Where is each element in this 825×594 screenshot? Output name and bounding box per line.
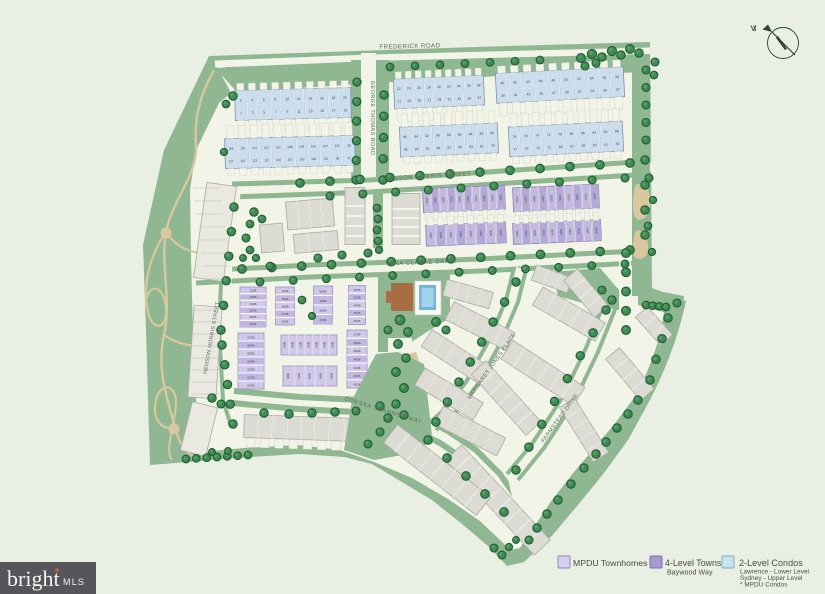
svg-text:MLS: MLS	[63, 577, 85, 587]
svg-text:0606: 0606	[248, 343, 255, 347]
svg-text:1900: 1900	[466, 195, 470, 202]
svg-text:4506: 4506	[319, 373, 323, 379]
svg-text:49: 49	[565, 90, 569, 94]
svg-text:40: 40	[500, 81, 504, 85]
svg-text:53: 53	[590, 89, 594, 93]
svg-text:1300: 1300	[433, 197, 437, 204]
svg-text:3606: 3606	[354, 319, 361, 323]
svg-text:* MPDU Condos: * MPDU Condos	[740, 582, 788, 589]
svg-text:1506: 1506	[282, 297, 289, 301]
svg-text:0400: 0400	[541, 195, 545, 202]
svg-text:25: 25	[417, 98, 421, 102]
svg-text:91: 91	[426, 147, 430, 151]
svg-text:80: 80	[490, 131, 494, 135]
svg-text:3806: 3806	[354, 341, 361, 345]
svg-text:0300: 0300	[532, 195, 536, 202]
svg-text:42: 42	[513, 80, 517, 84]
svg-text:8: 8	[274, 98, 276, 102]
svg-text:66: 66	[581, 131, 585, 135]
svg-text:3906: 3906	[354, 349, 361, 353]
svg-text:5806: 5806	[320, 290, 327, 294]
svg-text:2506: 2506	[331, 342, 335, 348]
svg-text:59: 59	[616, 142, 620, 146]
svg-text:6: 6	[263, 98, 265, 102]
svg-text:78: 78	[513, 135, 517, 139]
svg-text:71: 71	[547, 145, 551, 149]
svg-text:50: 50	[564, 78, 568, 82]
svg-text:98: 98	[347, 143, 351, 147]
svg-text:0706: 0706	[248, 335, 255, 339]
svg-text:Baywood Way: Baywood Way	[667, 570, 713, 577]
svg-text:0200: 0200	[523, 196, 527, 203]
svg-text:4400: 4400	[568, 228, 572, 235]
svg-text:4100: 4100	[541, 229, 545, 236]
svg-text:0906: 0906	[250, 315, 257, 319]
svg-text:0406: 0406	[248, 359, 255, 363]
svg-text:2206: 2206	[307, 342, 311, 348]
svg-text:104: 104	[311, 144, 316, 148]
svg-text:0306: 0306	[248, 367, 255, 371]
svg-text:2-Level Condos: 2-Level Condos	[739, 558, 803, 568]
svg-text:bright: bright	[7, 566, 60, 591]
svg-text:58: 58	[615, 75, 619, 79]
svg-text:18: 18	[332, 96, 336, 100]
svg-text:118: 118	[228, 146, 233, 150]
svg-text:2300: 2300	[490, 194, 494, 201]
svg-text:86: 86	[458, 133, 462, 137]
svg-text:2106: 2106	[299, 342, 303, 348]
svg-text:2006: 2006	[291, 342, 295, 348]
svg-text:1500: 1500	[441, 196, 445, 203]
svg-text:117: 117	[229, 159, 234, 163]
svg-text:2306: 2306	[315, 342, 319, 348]
svg-text:4-Level Towns: 4-Level Towns	[665, 558, 722, 568]
svg-text:1806: 1806	[282, 320, 289, 324]
svg-text:113: 113	[252, 158, 257, 162]
svg-text:1406: 1406	[282, 289, 289, 293]
svg-text:3900: 3900	[524, 230, 528, 237]
svg-text:114: 114	[252, 146, 257, 150]
svg-text:103: 103	[311, 157, 316, 161]
svg-text:51: 51	[578, 90, 582, 94]
svg-text:34: 34	[457, 84, 461, 88]
svg-text:23: 23	[407, 99, 411, 103]
svg-text:70: 70	[558, 132, 562, 136]
svg-text:41: 41	[514, 93, 518, 97]
svg-text:2200: 2200	[482, 195, 486, 202]
svg-text:39: 39	[501, 94, 505, 98]
svg-text:29: 29	[437, 98, 441, 102]
svg-text:1306: 1306	[250, 289, 257, 293]
svg-text:30: 30	[437, 85, 441, 89]
svg-text:1000: 1000	[592, 193, 596, 200]
svg-text:2600: 2600	[429, 232, 433, 239]
svg-text:4406: 4406	[329, 373, 333, 379]
svg-text:60: 60	[615, 129, 619, 133]
svg-text:1606: 1606	[282, 304, 289, 308]
svg-text:1: 1	[240, 111, 242, 115]
svg-text:2100: 2100	[474, 195, 478, 202]
svg-text:48: 48	[551, 78, 555, 82]
svg-text:44: 44	[526, 80, 530, 84]
svg-text:3206: 3206	[354, 288, 361, 292]
svg-text:2706: 2706	[320, 318, 327, 322]
svg-text:0600: 0600	[558, 194, 562, 201]
svg-text:82: 82	[479, 132, 483, 136]
svg-text:56: 56	[602, 76, 606, 80]
svg-text:14: 14	[308, 97, 312, 101]
svg-text:4: 4	[251, 98, 253, 102]
svg-text:73: 73	[536, 146, 540, 150]
svg-text:0900: 0900	[584, 193, 588, 200]
svg-text:3706: 3706	[354, 333, 361, 337]
svg-text:MPDU Townhomes: MPDU Townhomes	[573, 558, 648, 568]
svg-text:76: 76	[524, 134, 528, 138]
svg-text:27: 27	[427, 98, 431, 102]
svg-text:79: 79	[491, 144, 495, 148]
svg-text:38: 38	[477, 83, 481, 87]
svg-text:115: 115	[240, 159, 245, 163]
svg-text:88: 88	[447, 133, 451, 137]
svg-text:116: 116	[240, 146, 245, 150]
svg-text:3100: 3100	[469, 230, 473, 237]
svg-text:4800: 4800	[594, 227, 598, 234]
svg-text:2406: 2406	[323, 342, 327, 348]
svg-text:0506: 0506	[248, 351, 255, 355]
svg-text:4706: 4706	[297, 373, 301, 379]
svg-text:5: 5	[263, 110, 265, 114]
svg-text:97: 97	[348, 156, 352, 160]
svg-text:72: 72	[547, 133, 551, 137]
svg-text:101: 101	[323, 157, 328, 161]
svg-text:69: 69	[559, 145, 563, 149]
svg-text:2800: 2800	[439, 232, 443, 239]
svg-text:0800: 0800	[575, 193, 579, 200]
svg-text:28: 28	[427, 85, 431, 89]
svg-text:10: 10	[285, 97, 289, 101]
svg-text:4500: 4500	[577, 227, 581, 234]
svg-text:3506: 3506	[354, 311, 361, 315]
svg-text:105: 105	[299, 157, 304, 161]
svg-text:4206: 4206	[354, 374, 361, 378]
svg-text:3306: 3306	[354, 296, 361, 300]
svg-text:1200: 1200	[425, 197, 429, 204]
svg-text:46: 46	[539, 79, 543, 83]
svg-text:4606: 4606	[308, 373, 312, 379]
svg-text:4106: 4106	[354, 366, 361, 370]
svg-text:2: 2	[240, 98, 242, 102]
svg-text:2906: 2906	[320, 299, 327, 303]
svg-text:100: 100	[335, 144, 340, 148]
svg-text:107: 107	[288, 158, 293, 162]
svg-text:43: 43	[526, 92, 530, 96]
svg-text:1906: 1906	[283, 342, 287, 348]
svg-text:85: 85	[458, 145, 462, 149]
svg-text:24: 24	[407, 86, 411, 90]
svg-text:1700: 1700	[449, 196, 453, 203]
svg-text:16: 16	[320, 96, 324, 100]
svg-text:45: 45	[539, 92, 543, 96]
svg-text:111: 111	[264, 158, 269, 162]
svg-text:3600: 3600	[515, 230, 519, 237]
svg-text:112: 112	[264, 146, 269, 150]
svg-text:110: 110	[276, 145, 281, 149]
svg-text:92: 92	[425, 134, 429, 138]
svg-text:62: 62	[604, 130, 608, 134]
svg-text:5206: 5206	[250, 309, 257, 313]
svg-text:35: 35	[467, 96, 471, 100]
svg-text:67: 67	[570, 144, 574, 148]
svg-text:84: 84	[469, 132, 473, 136]
svg-text:3300: 3300	[489, 229, 493, 236]
svg-text:61: 61	[604, 142, 608, 146]
svg-text:77: 77	[513, 147, 517, 151]
svg-text:74: 74	[535, 133, 539, 137]
svg-text:22: 22	[397, 87, 401, 91]
svg-text:55: 55	[603, 88, 607, 92]
svg-text:26: 26	[417, 86, 421, 90]
svg-text:68: 68	[569, 132, 573, 136]
svg-text:4000: 4000	[533, 229, 537, 236]
svg-text:102: 102	[323, 144, 328, 148]
svg-text:64: 64	[592, 131, 596, 135]
svg-text:15: 15	[320, 109, 324, 113]
svg-text:3200: 3200	[479, 230, 483, 237]
svg-text:37: 37	[477, 96, 481, 100]
svg-text:4806: 4806	[286, 373, 290, 379]
svg-text:108: 108	[287, 145, 292, 149]
svg-text:19: 19	[343, 108, 347, 112]
svg-text:32: 32	[447, 85, 451, 89]
svg-text:9: 9	[286, 110, 288, 114]
svg-text:1206: 1206	[250, 295, 257, 299]
svg-text:4300: 4300	[559, 228, 563, 235]
svg-text:83: 83	[469, 145, 473, 149]
svg-text:89: 89	[436, 146, 440, 150]
svg-text:99: 99	[336, 156, 340, 160]
svg-text:4006: 4006	[354, 358, 361, 362]
svg-text:93: 93	[415, 147, 419, 151]
svg-text:17: 17	[332, 109, 336, 113]
svg-text:0806: 0806	[250, 322, 257, 326]
svg-text:52: 52	[577, 77, 581, 81]
svg-text:13: 13	[309, 109, 313, 113]
svg-text:2806: 2806	[320, 309, 327, 313]
svg-text:7: 7	[275, 110, 277, 114]
svg-text:96: 96	[403, 135, 407, 139]
svg-text:21: 21	[397, 99, 401, 103]
svg-text:GEORGE THOMAS ROAD: GEORGE THOMAS ROAD	[369, 81, 375, 156]
svg-text:57: 57	[616, 88, 620, 92]
svg-text:2900: 2900	[449, 231, 453, 238]
svg-text:87: 87	[447, 146, 451, 150]
svg-text:3406: 3406	[354, 303, 361, 307]
svg-text:47: 47	[552, 91, 556, 95]
svg-text:3: 3	[252, 111, 254, 115]
svg-text:12: 12	[297, 97, 301, 101]
svg-text:94: 94	[414, 134, 418, 138]
svg-text:11: 11	[297, 109, 301, 113]
svg-text:95: 95	[404, 148, 408, 152]
svg-text:106: 106	[299, 145, 304, 149]
svg-text:0206: 0206	[248, 375, 255, 379]
svg-text:90: 90	[436, 133, 440, 137]
svg-text:36: 36	[467, 84, 471, 88]
svg-text:109: 109	[276, 158, 281, 162]
svg-text:1706: 1706	[282, 312, 289, 316]
svg-text:0700: 0700	[566, 194, 570, 201]
svg-text:4200: 4200	[550, 229, 554, 236]
svg-text:75: 75	[525, 147, 529, 151]
svg-text:4600: 4600	[585, 227, 589, 234]
svg-text:3400: 3400	[499, 229, 503, 236]
svg-text:54: 54	[590, 76, 594, 80]
svg-text:1800: 1800	[457, 196, 461, 203]
svg-text:63: 63	[593, 143, 597, 147]
svg-text:3000: 3000	[459, 231, 463, 238]
svg-text:1106: 1106	[250, 302, 257, 306]
svg-text:81: 81	[480, 144, 484, 148]
svg-text:0500: 0500	[549, 195, 553, 202]
svg-text:0100: 0100	[515, 196, 519, 203]
svg-text:20: 20	[343, 96, 347, 100]
svg-text:65: 65	[581, 144, 585, 148]
svg-text:0106: 0106	[248, 383, 255, 387]
svg-text:31: 31	[447, 97, 451, 101]
svg-text:2400: 2400	[498, 194, 502, 201]
svg-text:33: 33	[457, 97, 461, 101]
